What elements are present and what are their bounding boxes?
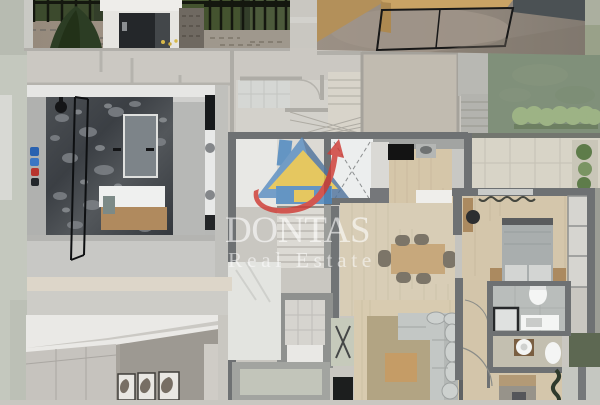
svg-text:DONTAS: DONTAS: [225, 210, 370, 251]
svg-text:Real Estate: Real Estate: [228, 248, 376, 272]
